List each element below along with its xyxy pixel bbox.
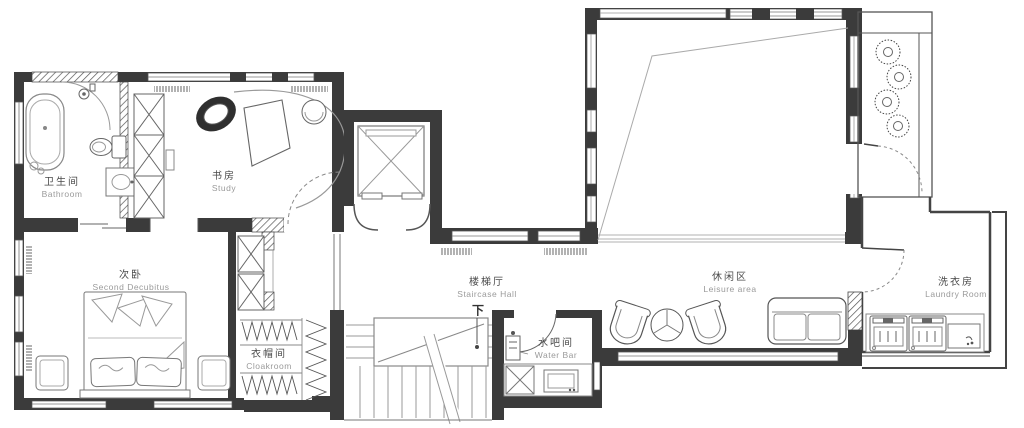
armchair-right xyxy=(685,299,732,348)
cloakroom-fixtures xyxy=(238,236,326,400)
curtain-symbol xyxy=(290,86,328,92)
room-name-en: Second Decubitus xyxy=(93,282,170,292)
plant-1 xyxy=(876,40,900,64)
plant-2 xyxy=(887,65,911,89)
room-name-zh: 楼梯厅 xyxy=(457,277,516,289)
water-bar-fixtures xyxy=(492,310,602,420)
bathtub xyxy=(26,94,64,170)
floor-plan-drawing xyxy=(0,0,1024,428)
room-name-zh: 卫生间 xyxy=(42,177,83,189)
room-label-cloakroom: 衣帽间 Cloakroom xyxy=(246,349,292,371)
hall-walls xyxy=(432,228,598,255)
radiator-symbol xyxy=(544,248,588,255)
curtain-symbol xyxy=(154,86,190,92)
room-label-study: 书房 Study xyxy=(212,171,236,193)
room-name-zh: 次卧 xyxy=(93,270,170,282)
room-name-en: Water Bar xyxy=(535,350,577,360)
round-table xyxy=(651,309,683,341)
nightstand-left xyxy=(36,356,68,390)
nightstand-right xyxy=(198,356,230,390)
washing-machine-2 xyxy=(909,316,946,351)
upper-right-room xyxy=(585,8,862,244)
armchair-left xyxy=(605,299,652,348)
ceiling-slope-line xyxy=(598,28,848,240)
radiator-symbol xyxy=(440,248,472,255)
stair-direction-label: 下 xyxy=(472,302,484,319)
room-name-en: Staircase Hall xyxy=(457,289,516,299)
room-name-en: Bathroom xyxy=(42,189,83,199)
laundry-sink xyxy=(948,324,980,348)
staircase xyxy=(344,318,492,424)
room-name-zh: 休闲区 xyxy=(703,272,756,284)
room-label-second-bedroom: 次卧 Second Decubitus xyxy=(93,270,170,292)
vanity-sink xyxy=(106,168,138,196)
water-bar-counter xyxy=(504,364,592,396)
room-label-leisure-area: 休闲区 Leisure area xyxy=(703,272,756,294)
laundry-door xyxy=(862,248,904,292)
room-label-water-bar: 水吧间 Water Bar xyxy=(535,338,577,360)
plants xyxy=(875,40,911,137)
room-name-zh: 书房 xyxy=(212,171,236,183)
room-name-en: Cloakroom xyxy=(246,361,292,371)
sofa xyxy=(768,298,846,344)
stool xyxy=(302,100,326,124)
room-name-en: Study xyxy=(212,183,236,193)
study-furniture xyxy=(134,86,345,224)
desk-chair xyxy=(190,90,242,139)
radiator-symbol xyxy=(26,344,32,372)
corridor-door xyxy=(864,144,922,193)
room-name-zh: 洗衣房 xyxy=(925,277,987,289)
room-name-en: Laundry Room xyxy=(925,289,987,299)
room-name-en: Leisure area xyxy=(703,284,756,294)
arch-trim-right xyxy=(406,204,430,230)
plant-4 xyxy=(887,115,909,137)
arch-trim-left xyxy=(354,204,378,230)
room-name-zh: 水吧间 xyxy=(535,338,577,350)
room-label-staircase-hall: 楼梯厅 Staircase Hall xyxy=(457,277,516,299)
radiator-symbol xyxy=(26,246,32,274)
elevator-car xyxy=(358,126,424,199)
washing-machine-1 xyxy=(870,316,907,351)
toilet xyxy=(90,136,126,158)
plant-3 xyxy=(875,90,899,114)
plant-corridor xyxy=(858,12,932,197)
bedroom-furniture xyxy=(26,246,230,398)
room-label-bathroom: 卫生间 Bathroom xyxy=(42,177,83,199)
elevator xyxy=(344,110,442,244)
room-name-zh: 衣帽间 xyxy=(246,349,292,361)
bed xyxy=(80,292,190,398)
room-label-laundry-room: 洗衣房 Laundry Room xyxy=(925,277,987,299)
desk xyxy=(244,100,290,166)
shower xyxy=(62,82,110,130)
floor-plan-page: 卫生间 Bathroom 书房 Study 次卧 Second Decubitu… xyxy=(0,0,1024,428)
water-bar-sink xyxy=(506,331,520,360)
leisure-furniture xyxy=(600,298,862,366)
study-cabinet xyxy=(134,94,174,218)
